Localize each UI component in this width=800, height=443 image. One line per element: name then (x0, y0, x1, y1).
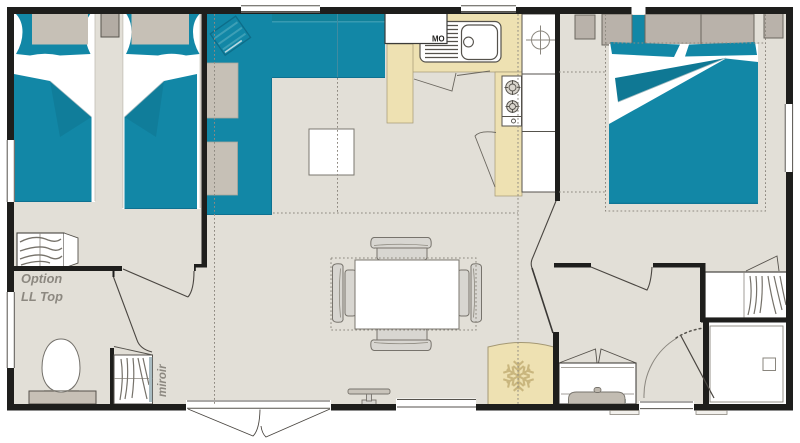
svg-text:miroir: miroir (157, 364, 169, 397)
svg-text:Option: Option (21, 271, 62, 286)
svg-text:MO: MO (432, 35, 445, 44)
svg-text:LL Top: LL Top (21, 289, 63, 304)
